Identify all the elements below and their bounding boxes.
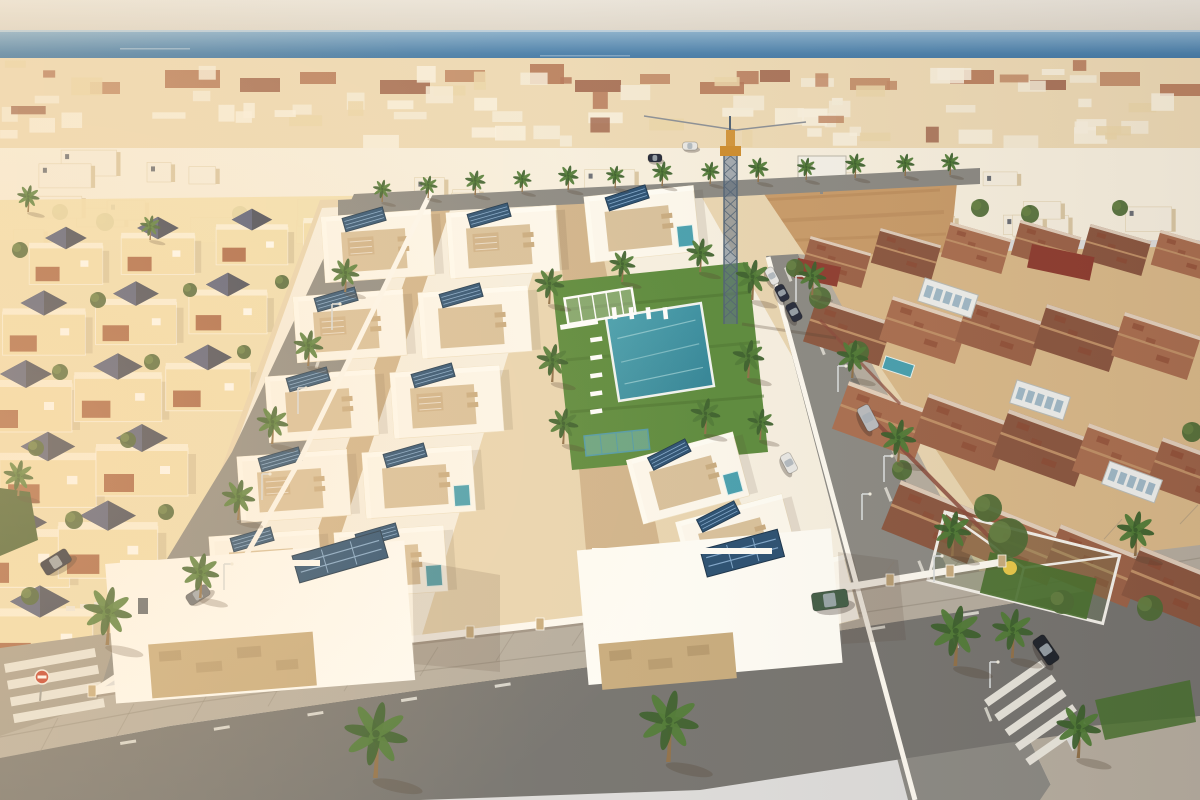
warm-light-wash	[0, 0, 1200, 800]
aerial-render-canvas	[0, 0, 1200, 800]
aerial-photo	[0, 0, 1200, 800]
